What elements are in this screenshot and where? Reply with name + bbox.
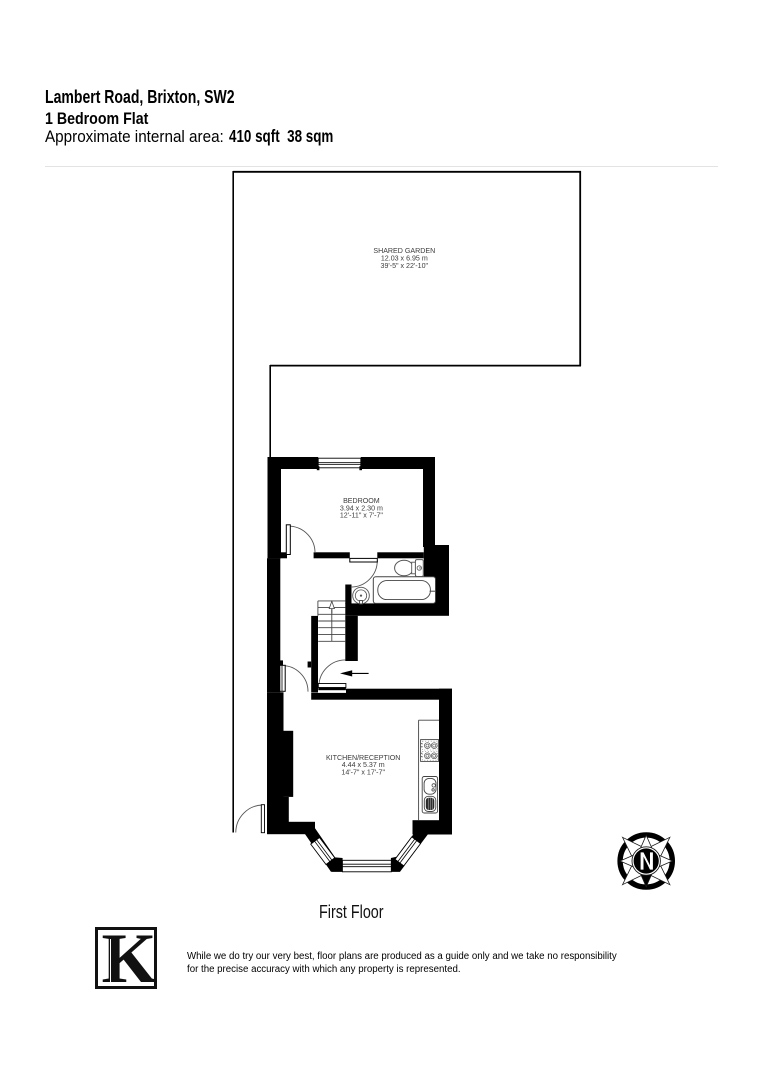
svg-text:39'-5" x 22'-10": 39'-5" x 22'-10": [381, 262, 429, 270]
svg-text:14'-7" x 17'-7": 14'-7" x 17'-7": [341, 768, 385, 776]
svg-text:12'-11" x 7'-7": 12'-11" x 7'-7": [340, 512, 384, 520]
